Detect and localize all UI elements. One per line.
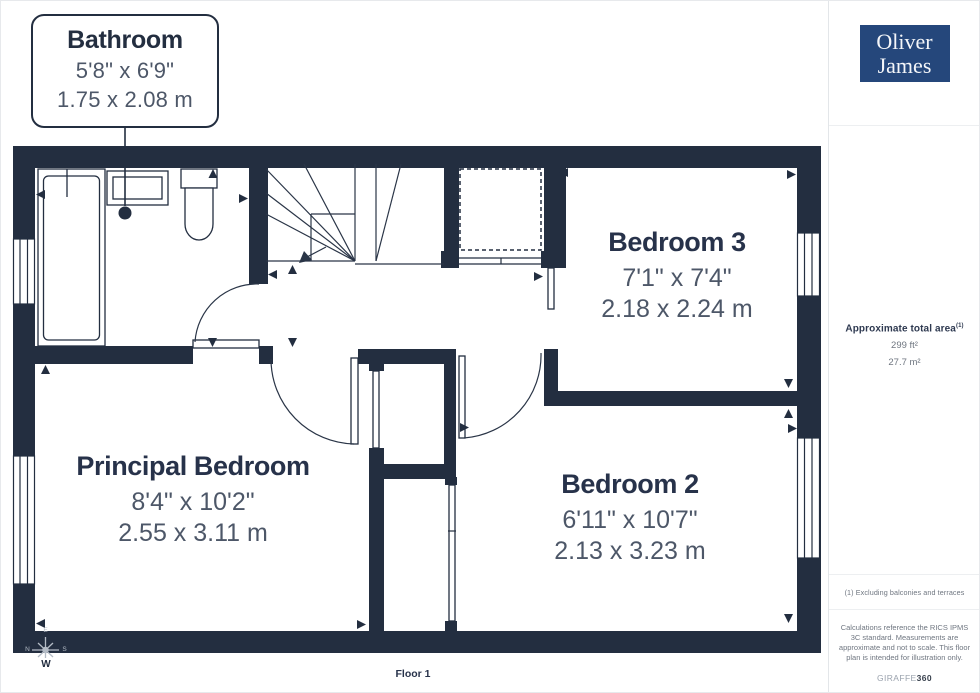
floorplan-canvas: Bathroom 5'8" x 6'9" 1.75 x 2.08 m Bedro… xyxy=(1,1,828,692)
window-principal-left xyxy=(14,456,35,584)
total-area-section: Approximate total area(1) 299 ft² 27.7 m… xyxy=(829,126,980,575)
total-area-metric: 27.7 m² xyxy=(829,357,980,368)
footnote-section: (1) Excluding balconies and terraces xyxy=(829,575,980,610)
oliver-james-logo: Oliver James xyxy=(860,25,950,82)
total-area-imperial: 299 ft² xyxy=(829,340,980,351)
sink-icon xyxy=(107,171,168,205)
disclaimer-section: Calculations reference the RICS IPMS 3C … xyxy=(829,610,980,683)
compass-south-label: S xyxy=(58,646,71,653)
room-imperial-dimensions: 8'4" x 10'2" xyxy=(33,489,353,515)
room-metric-dimensions: 2.13 x 3.23 m xyxy=(480,538,780,564)
room-label-bedroom-2: Bedroom 2 6'11" x 10'7" 2.13 x 3.23 m xyxy=(480,470,780,564)
walls xyxy=(13,146,821,653)
closet-door-leaf xyxy=(373,371,379,448)
compass-west-label: W xyxy=(38,659,54,670)
wardrobe-door-leaves xyxy=(449,485,455,621)
balustrade xyxy=(459,258,541,264)
total-area-title: Approximate total area(1) xyxy=(829,323,980,334)
room-imperial-dimensions: 6'11" x 10'7" xyxy=(480,507,780,533)
bedroom2-door-arc xyxy=(464,353,541,438)
footnote-text: (1) Excluding balconies and terraces xyxy=(845,588,965,597)
bathroom-door-leaf xyxy=(193,340,259,348)
staircase xyxy=(266,164,444,264)
stairs-direction-arrow xyxy=(307,247,326,257)
room-imperial-dimensions: 7'1" x 7'4" xyxy=(547,265,807,291)
room-metric-dimensions: 2.18 x 2.24 m xyxy=(547,296,807,322)
toilet-icon xyxy=(181,169,217,240)
compass-east-label: E xyxy=(39,627,52,634)
total-area-title-text: Approximate total area xyxy=(845,323,956,334)
bathroom-imperial-dimensions: 5'8" x 6'9" xyxy=(33,58,217,84)
principal-bedroom-door-leaf xyxy=(351,358,358,444)
bathroom-callout: Bathroom 5'8" x 6'9" 1.75 x 2.08 m xyxy=(31,14,219,128)
logo-section: Oliver James xyxy=(829,25,980,126)
principal-bedroom-door-arc xyxy=(271,359,354,444)
bathroom-fixtures xyxy=(38,169,217,346)
disclaimer-text: Calculations reference the RICS IPMS 3C … xyxy=(838,623,972,664)
brand-suffix: 360 xyxy=(917,673,932,683)
floor-label: Floor 1 xyxy=(363,668,463,680)
total-area-footnote-marker: (1) xyxy=(956,323,964,329)
loft-hatch-dashed-outline xyxy=(460,169,541,250)
bathtub-icon xyxy=(38,169,105,346)
room-name: Principal Bedroom xyxy=(33,452,353,480)
compass-north-label: N xyxy=(21,646,34,653)
room-name: Bedroom 3 xyxy=(547,228,807,256)
room-label-principal-bedroom: Principal Bedroom 8'4" x 10'2" 2.55 x 3.… xyxy=(33,452,353,546)
giraffe360-brand: GIRAFFE360 xyxy=(829,673,980,683)
bathroom-door-arc xyxy=(195,284,259,342)
bathroom-metric-dimensions: 1.75 x 2.08 m xyxy=(33,87,217,113)
logo-line-2: James xyxy=(878,54,932,78)
floorplan-page: Bathroom 5'8" x 6'9" 1.75 x 2.08 m Bedro… xyxy=(0,0,980,693)
bathroom-callout-title: Bathroom xyxy=(33,26,217,55)
info-sidebar: Oliver James Approximate total area(1) 2… xyxy=(828,1,980,692)
room-label-bedroom-3: Bedroom 3 7'1" x 7'4" 2.18 x 2.24 m xyxy=(547,228,807,322)
brand-name: GIRAFFE xyxy=(877,673,917,683)
room-metric-dimensions: 2.55 x 3.11 m xyxy=(33,520,353,546)
window-bathroom-left xyxy=(14,239,35,304)
room-name: Bedroom 2 xyxy=(480,470,780,498)
logo-line-1: Oliver xyxy=(876,30,932,54)
window-bedroom2-right xyxy=(798,438,820,558)
